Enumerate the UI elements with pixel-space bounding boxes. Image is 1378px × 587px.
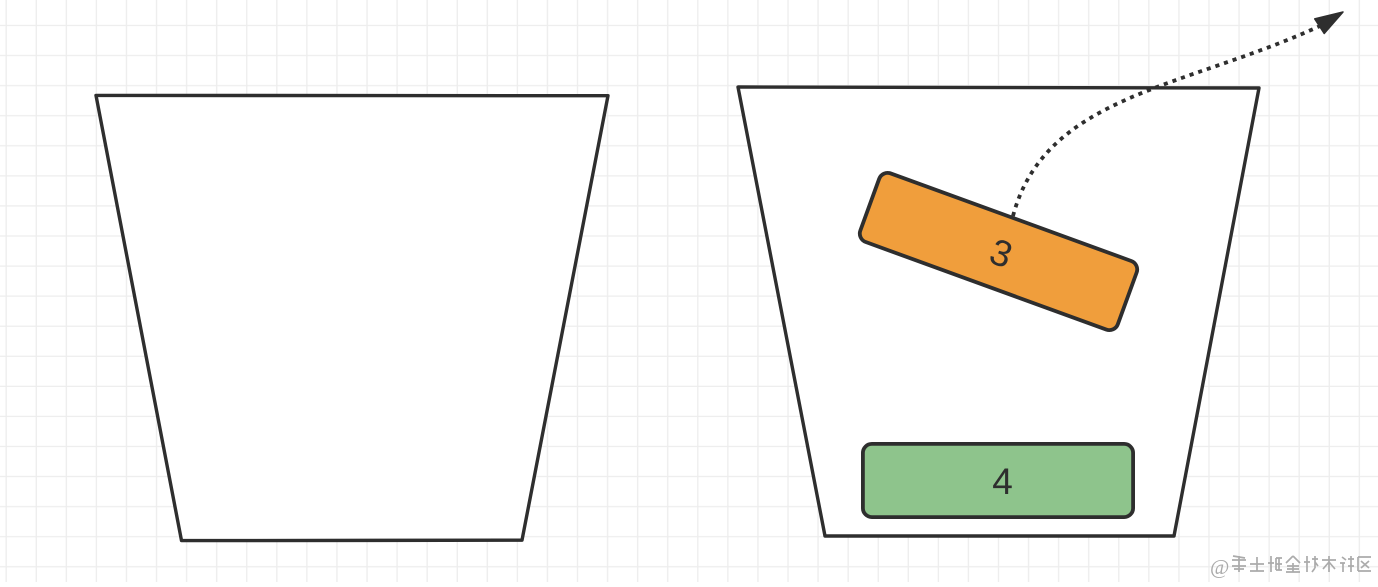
svg-text:4: 4 [992, 461, 1013, 502]
svg-text:@: @ [1210, 555, 1229, 579]
